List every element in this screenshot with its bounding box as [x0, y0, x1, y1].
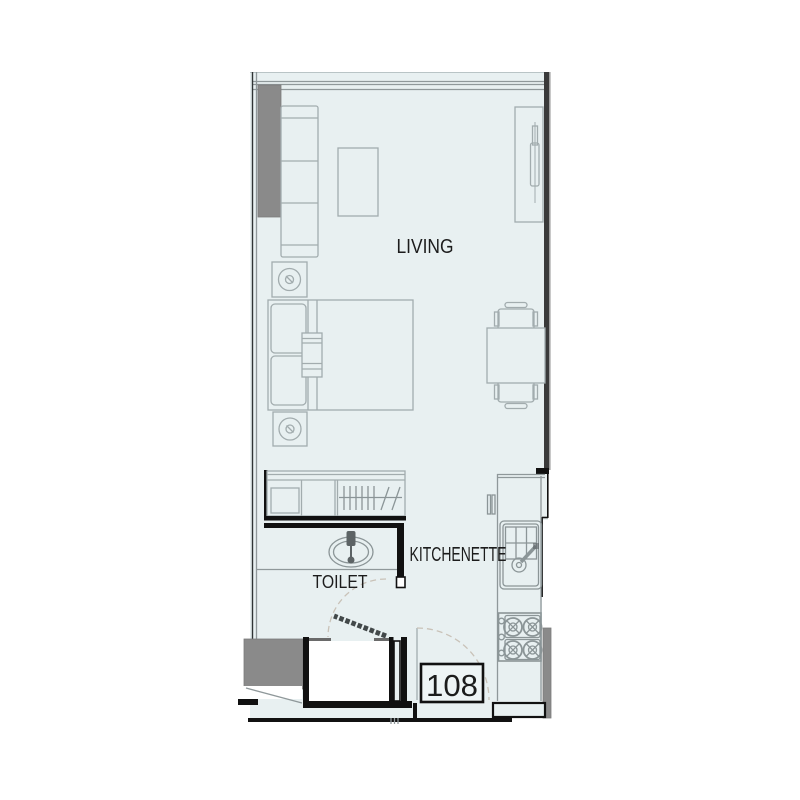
unit-number-tag: 108 [421, 664, 483, 703]
living-label: LIVING [397, 236, 454, 258]
column-bottom-left [244, 639, 303, 689]
door-jamb [397, 577, 406, 588]
sliding-panel [394, 641, 400, 701]
balcony-ledge [493, 703, 545, 717]
bottom-center-wall-stub [413, 703, 417, 718]
right-wall [544, 72, 549, 470]
floor-plan-page: LIVING TOILET KITCHENETTE 108 [0, 0, 800, 800]
column-top-left [258, 85, 281, 217]
floor-plan-drawing: LIVING TOILET KITCHENETTE 108 [0, 0, 800, 800]
floor-area [250, 72, 548, 718]
unit-number: 108 [426, 668, 478, 703]
toilet-label: TOILET [313, 572, 368, 592]
entry-vestibule [303, 637, 412, 708]
dining-table [487, 328, 545, 383]
bottom-left-wall-stub [238, 698, 258, 705]
overbed-table [302, 333, 322, 377]
kitchenette-label: KITCHENETTE [410, 544, 507, 566]
